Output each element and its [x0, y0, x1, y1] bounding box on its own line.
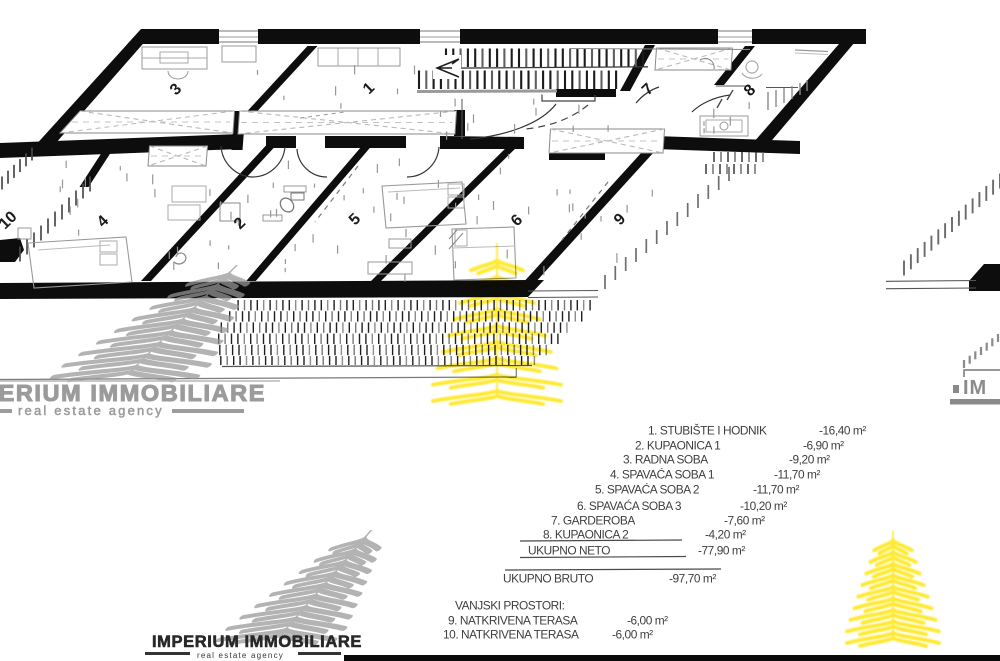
- svg-text:10. NATKRIVENA TERASA: 10. NATKRIVENA TERASA: [443, 628, 579, 642]
- svg-text:VANJSKI PROSTORI:: VANJSKI PROSTORI:: [455, 599, 565, 613]
- svg-text:-11,70 m²: -11,70 m²: [774, 468, 820, 482]
- svg-text:IMPERIUM IMMOBILIARE: IMPERIUM IMMOBILIARE: [152, 633, 362, 651]
- svg-text:real estate agency: real estate agency: [18, 403, 164, 418]
- svg-text:3. RADNA SOBA: 3. RADNA SOBA: [623, 453, 708, 467]
- svg-text:1. STUBIŠTE I HODNIK: 1. STUBIŠTE I HODNIK: [648, 423, 767, 438]
- svg-text:-6,00 m²: -6,00 m²: [612, 628, 653, 642]
- svg-text:-6,00 m²: -6,00 m²: [627, 614, 668, 628]
- svg-text:-7,60 m²: -7,60 m²: [724, 514, 765, 528]
- svg-text:IM: IM: [963, 377, 987, 399]
- svg-text:6. SPAVAĆA SOBA 3: 6. SPAVAĆA SOBA 3: [577, 498, 682, 513]
- svg-text:5. SPAVAĆA SOBA 2: 5. SPAVAĆA SOBA 2: [595, 482, 700, 497]
- svg-text:7. GARDEROBA: 7. GARDEROBA: [551, 514, 635, 528]
- svg-text:-4,20 m²: -4,20 m²: [705, 528, 746, 542]
- svg-text:-16,40 m²: -16,40 m²: [819, 424, 866, 438]
- svg-text:-6,90 m²: -6,90 m²: [803, 439, 844, 453]
- svg-text:real estate agency: real estate agency: [197, 651, 284, 660]
- svg-text:-9,20 m²: -9,20 m²: [789, 453, 830, 467]
- svg-text:-11,70 m²: -11,70 m²: [753, 483, 799, 497]
- svg-text:-10,20 m²: -10,20 m²: [740, 499, 787, 513]
- svg-text:UKUPNO NETO: UKUPNO NETO: [528, 544, 610, 558]
- svg-text:8. KUPAONICA 2: 8. KUPAONICA 2: [543, 528, 629, 542]
- svg-text:9. NATKRIVENA TERASA: 9. NATKRIVENA TERASA: [448, 614, 578, 628]
- svg-text:-77,90 m²: -77,90 m²: [698, 544, 745, 558]
- svg-text:UKUPNO BRUTO: UKUPNO BRUTO: [503, 572, 593, 586]
- svg-text:2. KUPAONICA 1: 2. KUPAONICA 1: [635, 439, 721, 453]
- svg-text:4. SPAVAĆA SOBA 1: 4. SPAVAĆA SOBA 1: [610, 467, 715, 482]
- svg-text:-97,70 m²: -97,70 m²: [669, 572, 716, 586]
